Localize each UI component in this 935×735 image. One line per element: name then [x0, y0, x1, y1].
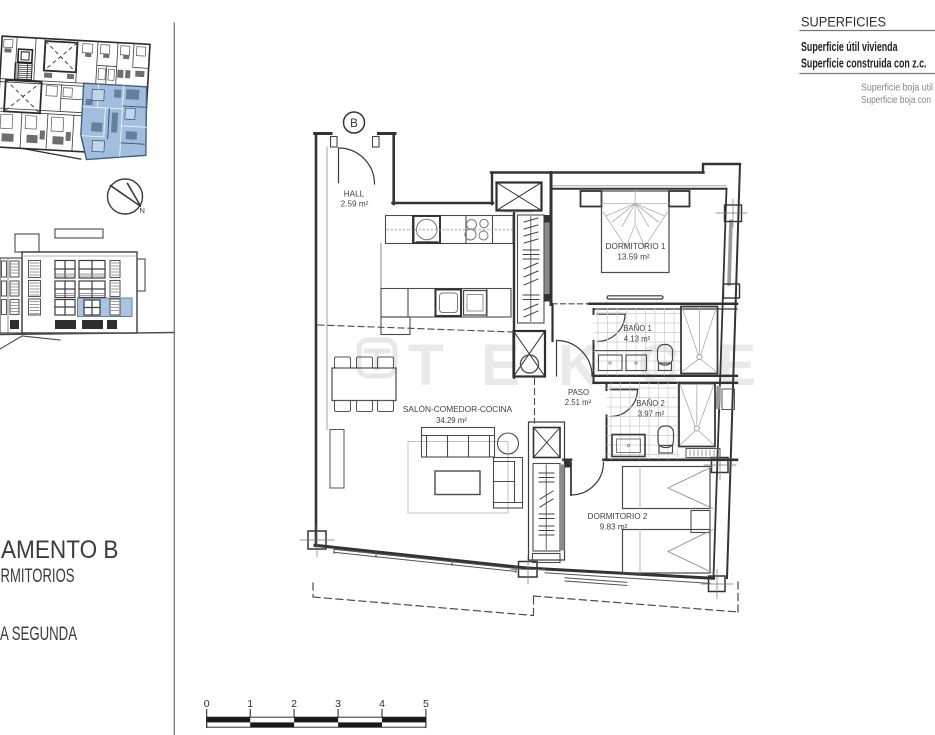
svg-text:5: 5	[423, 698, 429, 710]
svg-text:3: 3	[335, 698, 341, 710]
svg-text:2: 2	[291, 698, 297, 710]
svg-text:SUPERFICIES: SUPERFICIES	[801, 15, 886, 30]
svg-text:DORMITORIO 1: DORMITORIO 1	[606, 242, 666, 251]
svg-text:A SEGUNDA: A SEGUNDA	[0, 623, 77, 645]
svg-text:4: 4	[379, 698, 385, 710]
svg-text:AMENTO B: AMENTO B	[1, 536, 119, 564]
svg-text:BAÑO 2: BAÑO 2	[636, 399, 665, 408]
svg-text:2.59 m²: 2.59 m²	[341, 200, 369, 209]
svg-text:SALÓN-COMEDOR-COCINA: SALÓN-COMEDOR-COCINA	[403, 404, 513, 414]
svg-text:4.13 m²: 4.13 m²	[624, 335, 651, 344]
svg-text:Superficie boja con: Superficie boja con	[861, 95, 931, 106]
svg-text:13.59 m²: 13.59 m²	[617, 253, 650, 262]
svg-text:1: 1	[247, 698, 253, 710]
svg-text:RMITORIOS: RMITORIOS	[1, 565, 75, 587]
svg-text:DORMITORIO 2: DORMITORIO 2	[588, 512, 648, 521]
svg-text:3.97 m²: 3.97 m²	[638, 410, 665, 419]
svg-text:HALL: HALL	[344, 190, 365, 199]
svg-text:0: 0	[204, 698, 210, 710]
svg-text:Superficie útil vivienda: Superficie útil vivienda	[801, 40, 898, 54]
svg-text:PASO: PASO	[568, 388, 589, 397]
svg-text:B: B	[350, 118, 358, 130]
svg-text:N: N	[140, 206, 145, 215]
svg-text:34.29 m²: 34.29 m²	[436, 416, 467, 425]
svg-text:2.51 m²: 2.51 m²	[565, 398, 592, 407]
svg-text:9.83 m²: 9.83 m²	[600, 523, 628, 532]
svg-text:Superficie construida con z.c.: Superficie construida con z.c.	[801, 57, 927, 71]
svg-text:Superficie boja util: Superficie boja util	[861, 83, 933, 94]
svg-text:BAÑO 1: BAÑO 1	[623, 324, 652, 333]
